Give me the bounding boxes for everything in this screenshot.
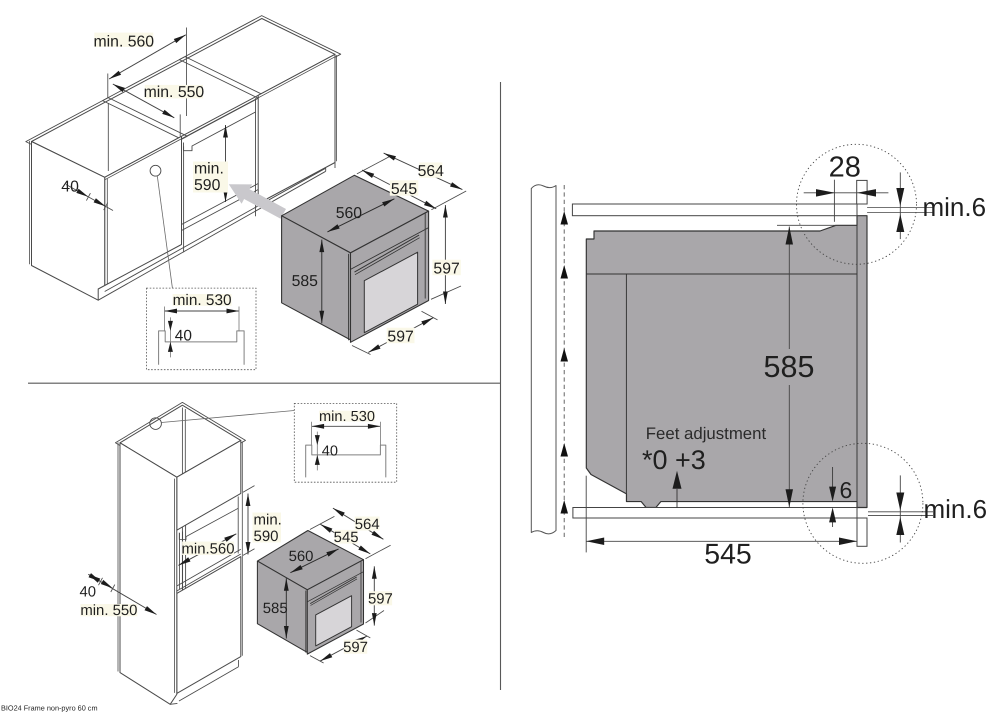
svg-text:560: 560 [289, 549, 314, 565]
svg-text:6: 6 [840, 477, 853, 503]
svg-text:min. 530: min. 530 [319, 409, 375, 425]
svg-text:min.: min. [254, 512, 282, 529]
svg-text:BIO24 Frame non-pyro 60 cm: BIO24 Frame non-pyro 60 cm [1, 704, 98, 713]
svg-text:min. 550: min. 550 [80, 603, 137, 619]
svg-text:597: 597 [343, 640, 368, 656]
svg-text:min.6: min.6 [924, 494, 988, 524]
svg-text:560: 560 [336, 205, 363, 222]
svg-text:590: 590 [194, 177, 221, 194]
svg-text:585: 585 [263, 601, 288, 617]
svg-text:min.6: min.6 [923, 192, 987, 222]
svg-text:28: 28 [829, 151, 861, 183]
svg-text:Feet adjustment: Feet adjustment [646, 424, 767, 443]
svg-text:min. 530: min. 530 [173, 292, 232, 309]
svg-text:545: 545 [334, 530, 359, 546]
svg-text:40: 40 [175, 327, 192, 344]
svg-text:40: 40 [322, 443, 338, 459]
svg-text:545: 545 [704, 539, 752, 571]
svg-text:597: 597 [368, 592, 393, 608]
svg-text:585: 585 [292, 273, 319, 290]
svg-text:min. 550: min. 550 [144, 84, 205, 101]
svg-text:*0 +3: *0 +3 [642, 445, 706, 475]
svg-text:597: 597 [433, 261, 459, 278]
svg-text:40: 40 [61, 178, 79, 195]
svg-text:40: 40 [80, 585, 97, 601]
svg-text:597: 597 [387, 329, 413, 346]
svg-text:min.: min. [194, 161, 224, 178]
svg-text:585: 585 [764, 350, 815, 384]
svg-text:590: 590 [254, 528, 279, 545]
svg-text:min. 560: min. 560 [94, 33, 155, 50]
svg-text:564: 564 [418, 163, 445, 180]
svg-text:545: 545 [391, 181, 418, 198]
svg-text:min.560: min.560 [182, 541, 235, 557]
